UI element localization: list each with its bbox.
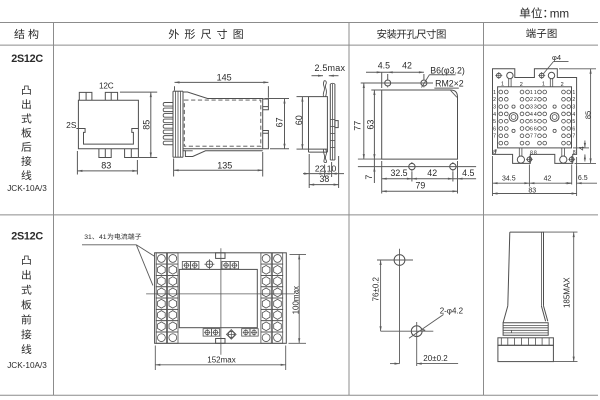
svg-text:76±0.2: 76±0.2 [372,276,381,301]
svg-text:5: 5 [572,119,575,125]
svg-text:7: 7 [534,134,537,140]
svg-text:2: 2 [572,97,575,103]
svg-text:7: 7 [530,134,533,140]
svg-text:22,10: 22,10 [315,163,337,173]
svg-text:6: 6 [493,126,496,132]
svg-text:JCK-10A/3: JCK-10A/3 [7,184,47,193]
svg-text:77: 77 [352,121,362,131]
svg-text:145: 145 [217,72,232,82]
svg-text:4: 4 [530,112,533,118]
svg-text:42: 42 [427,168,437,178]
svg-text:1: 1 [493,90,496,96]
svg-text:5: 5 [530,119,533,125]
svg-text:8: 8 [534,151,537,157]
svg-text:185MAX: 185MAX [563,277,572,308]
svg-text:85: 85 [584,111,593,119]
svg-text:4: 4 [534,112,537,118]
svg-text:2S: 2S [66,120,77,130]
svg-text:34.5: 34.5 [502,175,516,182]
svg-text:1: 1 [530,90,533,96]
svg-text:5: 5 [534,119,537,125]
svg-text:7: 7 [364,175,374,180]
svg-text:6: 6 [530,126,533,132]
svg-text:4.5: 4.5 [378,61,390,71]
svg-text:100max: 100max [291,286,300,314]
svg-text:4: 4 [572,112,575,118]
svg-text:6: 6 [572,126,575,132]
svg-text:2: 2 [561,82,564,88]
svg-text:2: 2 [520,82,523,88]
svg-text:3: 3 [572,105,575,111]
svg-text:4: 4 [493,112,496,118]
svg-text:63: 63 [366,120,376,130]
svg-text:8: 8 [573,150,576,156]
svg-text:2-φ4.2: 2-φ4.2 [440,306,464,315]
svg-text:RM2×2: RM2×2 [435,78,464,88]
svg-text:38: 38 [320,174,330,184]
svg-text:2: 2 [534,97,537,103]
svg-text:2S12C: 2S12C [11,230,43,242]
svg-text:31: 31 [84,234,92,241]
svg-text:32.5: 32.5 [390,168,407,178]
svg-text:φ4: φ4 [552,53,561,62]
svg-text:1: 1 [572,90,575,96]
svg-text:8: 8 [530,151,533,157]
svg-text:4: 4 [577,146,586,150]
svg-text:12C: 12C [99,82,114,91]
svg-text:83: 83 [101,160,111,170]
svg-text:1: 1 [534,90,537,96]
svg-text:83: 83 [528,187,536,194]
svg-text:6.5: 6.5 [578,175,588,182]
svg-text:152max: 152max [207,355,235,364]
svg-text:1: 1 [501,81,504,87]
svg-text:60: 60 [294,115,304,125]
svg-text:3: 3 [530,105,533,111]
svg-text:42: 42 [544,175,552,182]
svg-text:3: 3 [493,105,496,111]
svg-text:mm: mm [550,7,569,20]
svg-text:2S12C: 2S12C [11,53,43,65]
svg-text:135: 135 [217,161,232,171]
svg-text:42: 42 [402,61,412,71]
svg-text:B6(φ3.2): B6(φ3.2) [430,65,465,75]
svg-text:41: 41 [99,234,107,241]
svg-text:85: 85 [141,120,151,130]
svg-text:79: 79 [416,181,426,191]
svg-text:7: 7 [572,134,575,140]
svg-text:4.5: 4.5 [462,168,474,178]
svg-text:2: 2 [530,97,533,103]
svg-text:1: 1 [542,81,545,87]
svg-text:3: 3 [534,105,537,111]
svg-text:5: 5 [493,119,496,125]
svg-text:20±0.2: 20±0.2 [423,354,448,363]
svg-text:7: 7 [493,134,496,140]
svg-text:JCK-10A/3: JCK-10A/3 [7,361,47,370]
svg-text:2.5max: 2.5max [314,63,345,73]
svg-text:67: 67 [275,117,285,127]
svg-text:2: 2 [493,97,496,103]
svg-text:6: 6 [534,126,537,132]
